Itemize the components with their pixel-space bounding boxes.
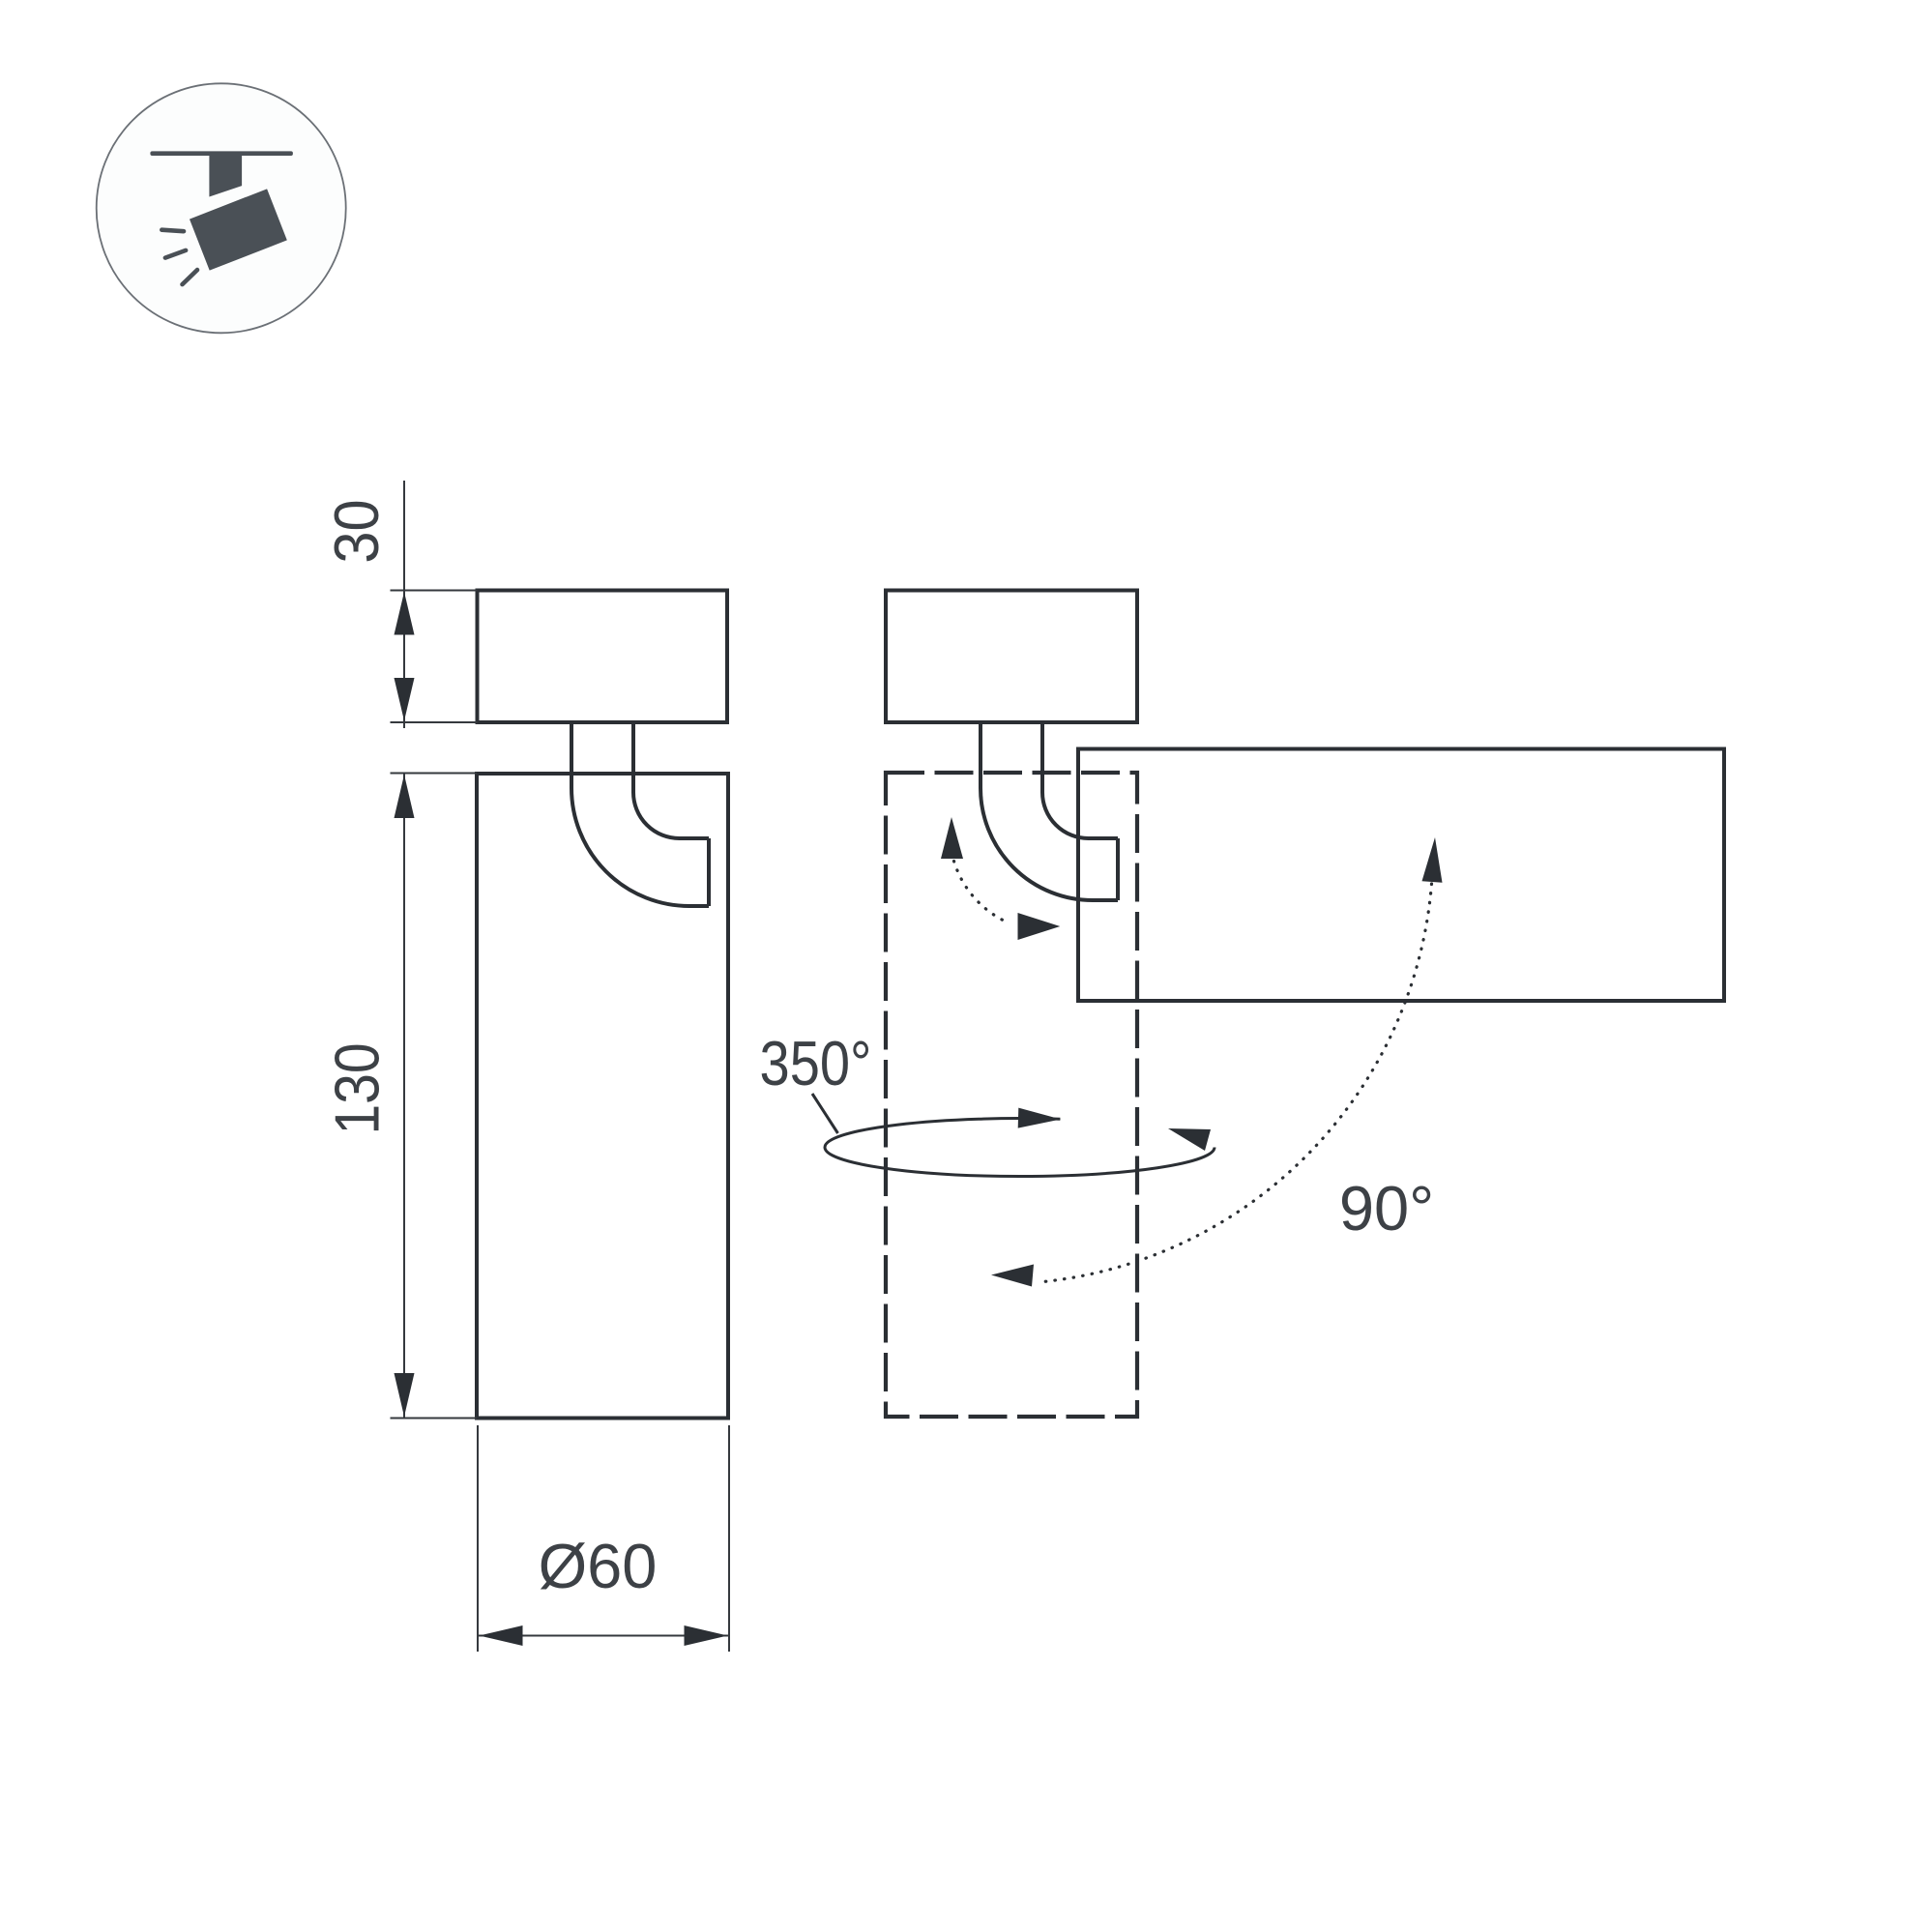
svg-text:Ø60: Ø60: [539, 1531, 658, 1601]
svg-text:350°: 350°: [760, 1028, 872, 1098]
svg-text:30: 30: [323, 499, 393, 563]
svg-text:130: 130: [322, 1042, 392, 1134]
svg-text:90°: 90°: [1339, 1173, 1434, 1244]
